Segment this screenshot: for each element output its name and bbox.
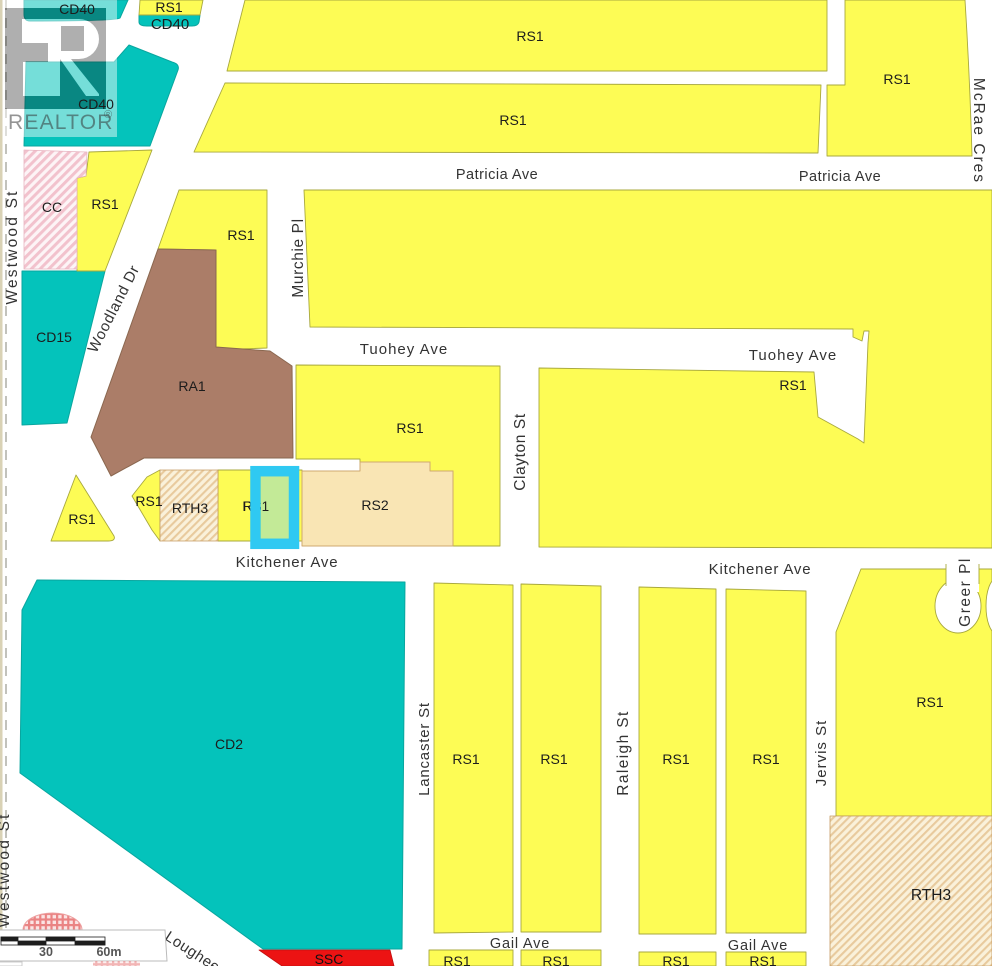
svg-text:Tuohey Ave: Tuohey Ave — [360, 341, 448, 358]
svg-text:CD40: CD40 — [78, 96, 114, 112]
svg-text:RS1: RS1 — [752, 751, 779, 767]
svg-text:CD40: CD40 — [151, 16, 189, 33]
svg-text:REALTOR: REALTOR — [8, 111, 114, 134]
svg-text:RS1: RS1 — [779, 377, 806, 393]
svg-text:Patricia Ave: Patricia Ave — [799, 169, 881, 185]
svg-text:CD40: CD40 — [59, 1, 95, 17]
svg-text:RTH3: RTH3 — [172, 500, 209, 516]
svg-text:RS1: RS1 — [540, 751, 567, 767]
svg-text:Westwood St: Westwood St — [0, 812, 13, 927]
svg-text:CC: CC — [42, 199, 62, 215]
svg-text:Kitchener Ave: Kitchener Ave — [709, 561, 812, 578]
svg-text:CD2: CD2 — [215, 736, 243, 752]
svg-text:Westwood St: Westwood St — [4, 189, 21, 304]
svg-text:Greer Pl: Greer Pl — [957, 557, 974, 627]
svg-text:RA1: RA1 — [178, 378, 205, 394]
svg-text:RS1: RS1 — [396, 420, 423, 436]
svg-text:Jervis St: Jervis St — [813, 720, 830, 787]
svg-text:Raleigh St: Raleigh St — [615, 710, 632, 796]
svg-text:Tuohey Ave: Tuohey Ave — [749, 347, 837, 364]
svg-text:SSC: SSC — [315, 951, 344, 966]
svg-text:RS1: RS1 — [227, 227, 254, 243]
svg-text:RS1: RS1 — [452, 751, 479, 767]
svg-text:RS2: RS2 — [361, 497, 388, 513]
svg-text:RS1: RS1 — [916, 694, 943, 710]
svg-text:RS1: RS1 — [91, 196, 118, 212]
svg-text:RS1: RS1 — [749, 953, 776, 966]
svg-text:RTH3: RTH3 — [911, 887, 951, 904]
svg-text:Gail Ave: Gail Ave — [490, 936, 550, 952]
svg-text:Lancaster St: Lancaster St — [416, 702, 433, 796]
svg-text:RS1: RS1 — [542, 953, 569, 966]
svg-text:RS1: RS1 — [155, 0, 182, 15]
svg-text:RS1: RS1 — [662, 953, 689, 966]
svg-text:RS1: RS1 — [516, 28, 543, 44]
svg-text:RS1: RS1 — [499, 112, 526, 128]
svg-text:RS1: RS1 — [443, 953, 470, 966]
svg-text:CD15: CD15 — [36, 329, 72, 345]
svg-text:RS1: RS1 — [68, 511, 95, 527]
svg-text:RS1: RS1 — [135, 493, 162, 509]
svg-text:RS1: RS1 — [662, 751, 689, 767]
svg-text:Kitchener Ave: Kitchener Ave — [236, 554, 339, 571]
svg-text:Gail Ave: Gail Ave — [728, 938, 788, 954]
svg-text:RS1: RS1 — [883, 71, 910, 87]
svg-text:60m: 60m — [96, 945, 121, 959]
svg-text:30: 30 — [39, 945, 53, 959]
svg-text:Murchie Pl: Murchie Pl — [290, 218, 307, 297]
svg-text:McRae Cres: McRae Cres — [970, 78, 987, 184]
svg-text:Patricia Ave: Patricia Ave — [456, 167, 538, 183]
svg-text:Clayton St: Clayton St — [512, 413, 529, 491]
